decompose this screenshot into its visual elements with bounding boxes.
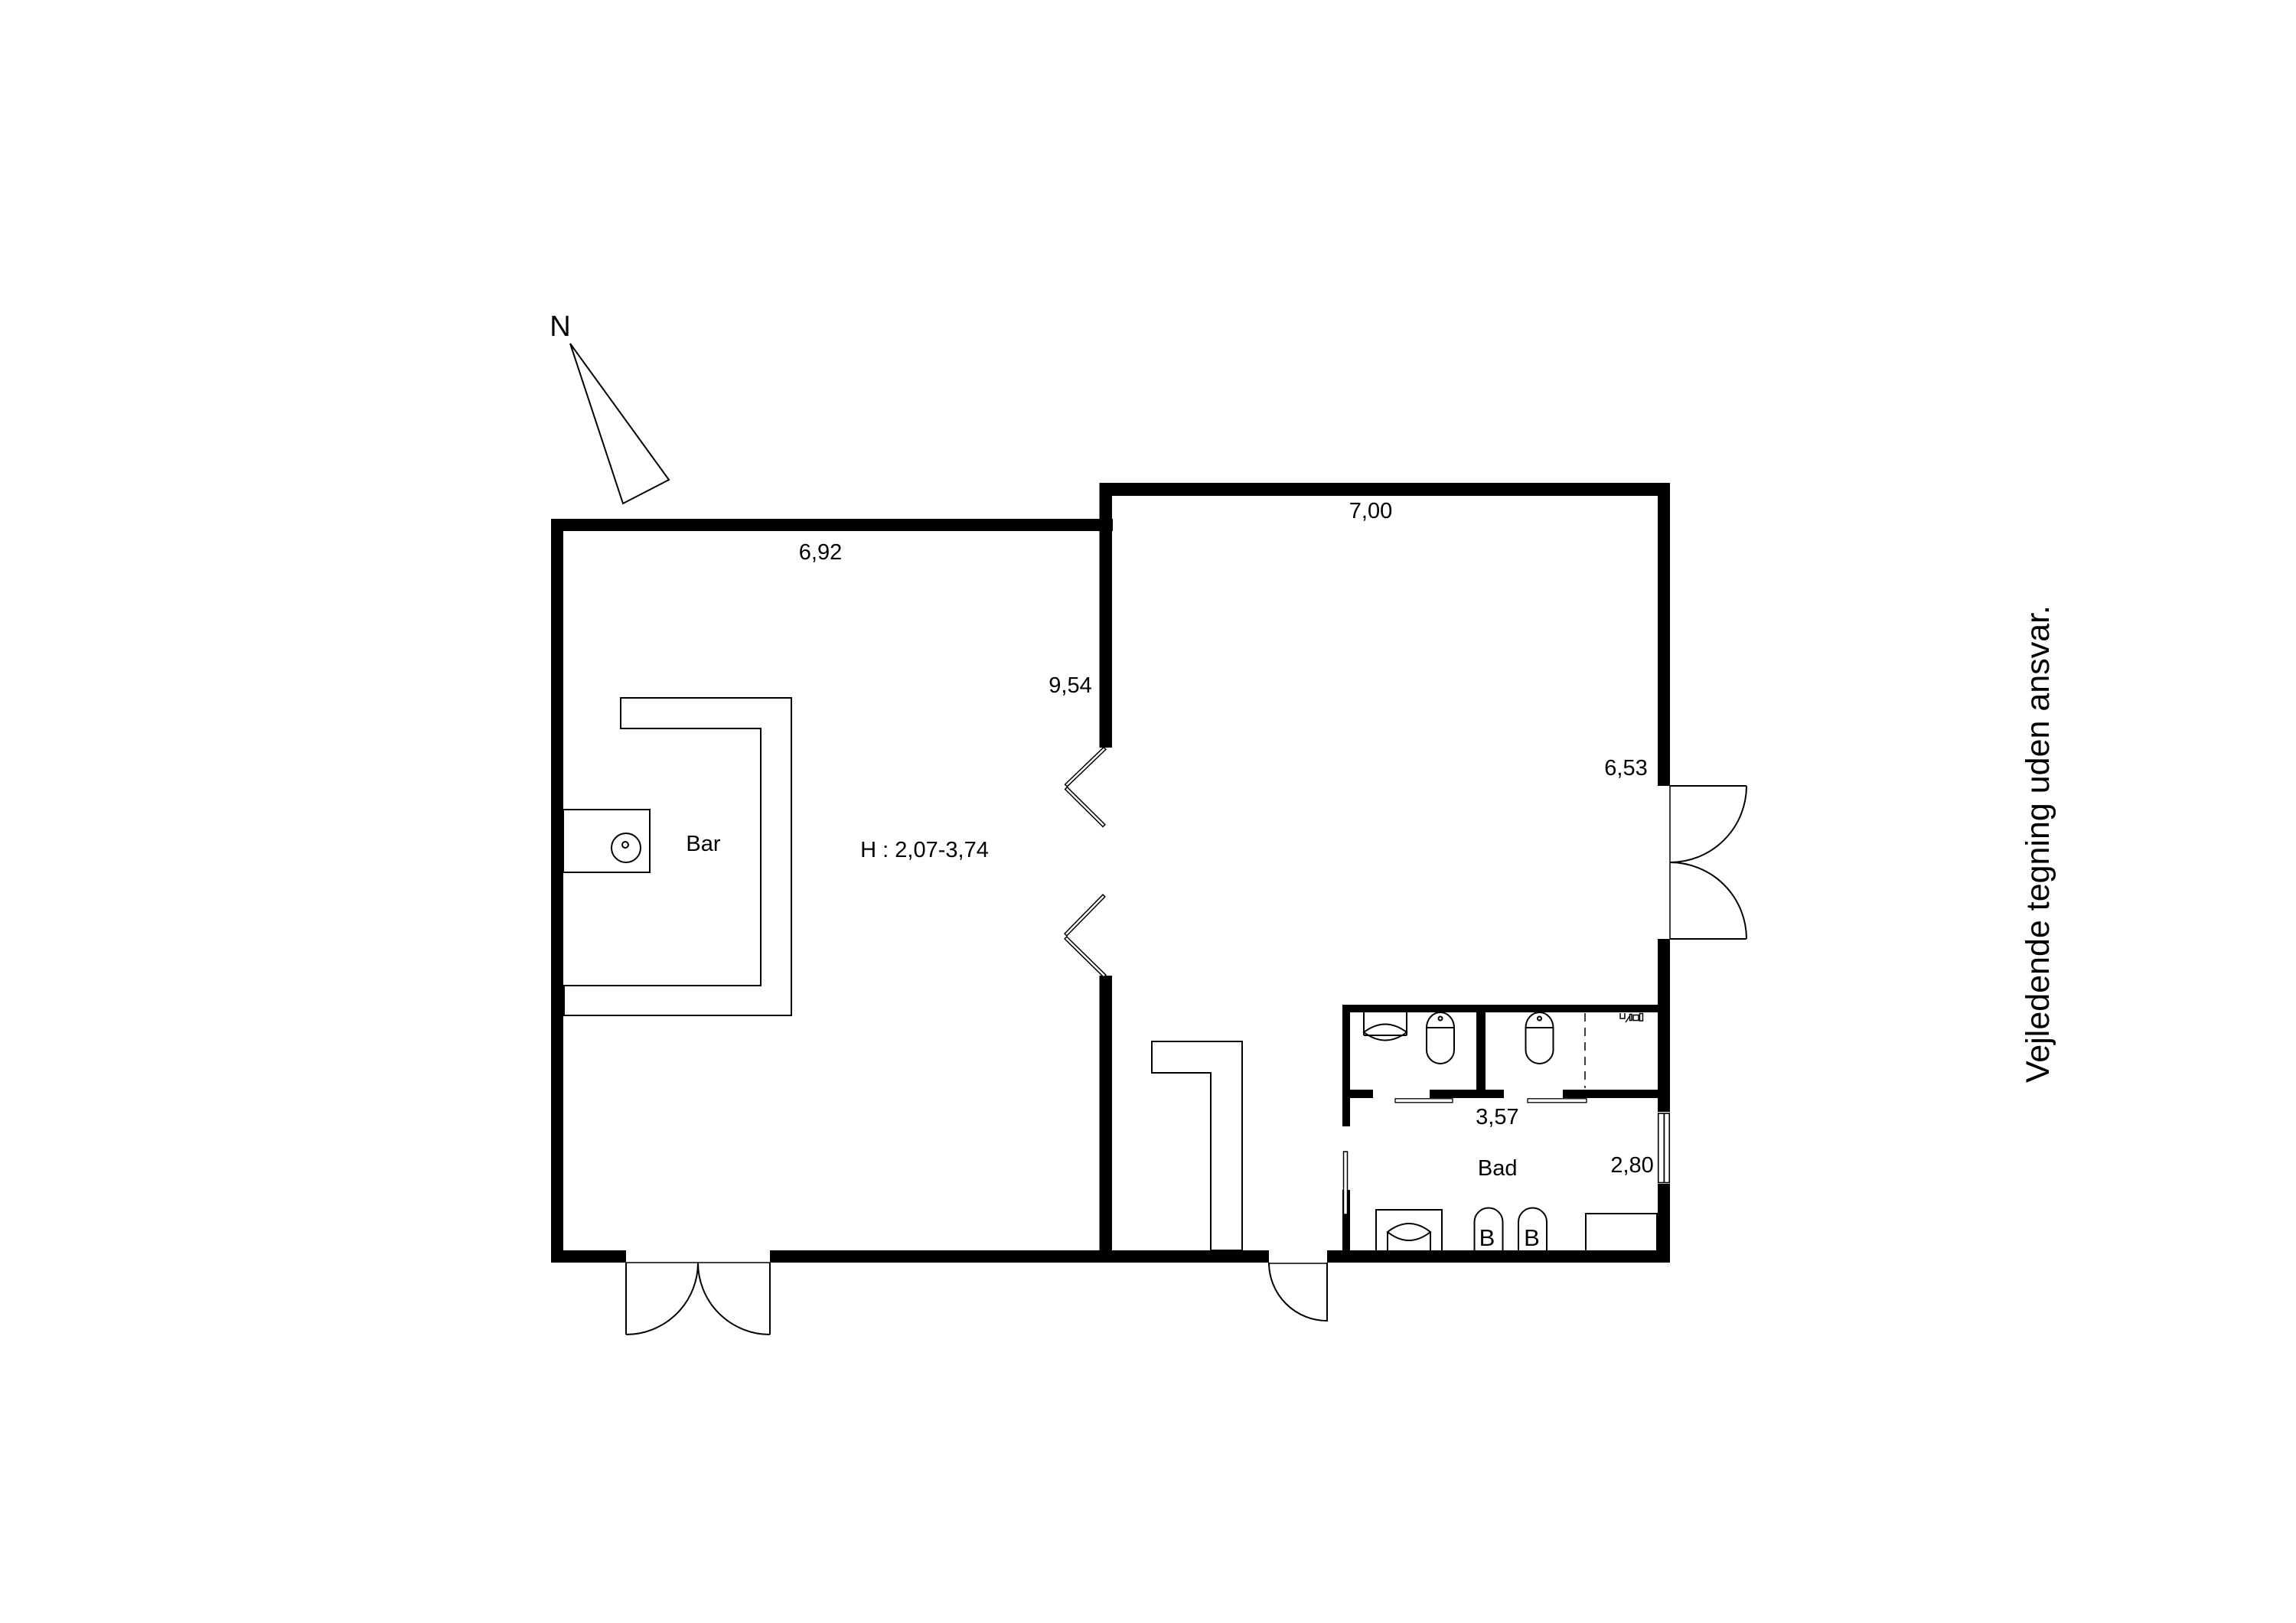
svg-text:Bad: Bad — [1478, 1156, 1518, 1181]
svg-text:3,57: 3,57 — [1476, 1105, 1518, 1129]
svg-text:B: B — [1524, 1224, 1540, 1251]
svg-text:2,80: 2,80 — [1610, 1153, 1653, 1178]
svg-text:7,00: 7,00 — [1349, 499, 1392, 523]
svg-text:B: B — [1479, 1224, 1495, 1251]
svg-text:6,92: 6,92 — [799, 540, 842, 565]
svg-text:6,53: 6,53 — [1604, 756, 1647, 781]
svg-text:Bar: Bar — [686, 832, 720, 856]
svg-text:N: N — [550, 311, 570, 343]
svg-text:9,54: 9,54 — [1049, 673, 1091, 698]
svg-text:H : 2,07-3,74: H : 2,07-3,74 — [860, 838, 989, 862]
svg-text:Vejledende tegning uden ansvar: Vejledende tegning uden ansvar. — [2020, 605, 2056, 1083]
